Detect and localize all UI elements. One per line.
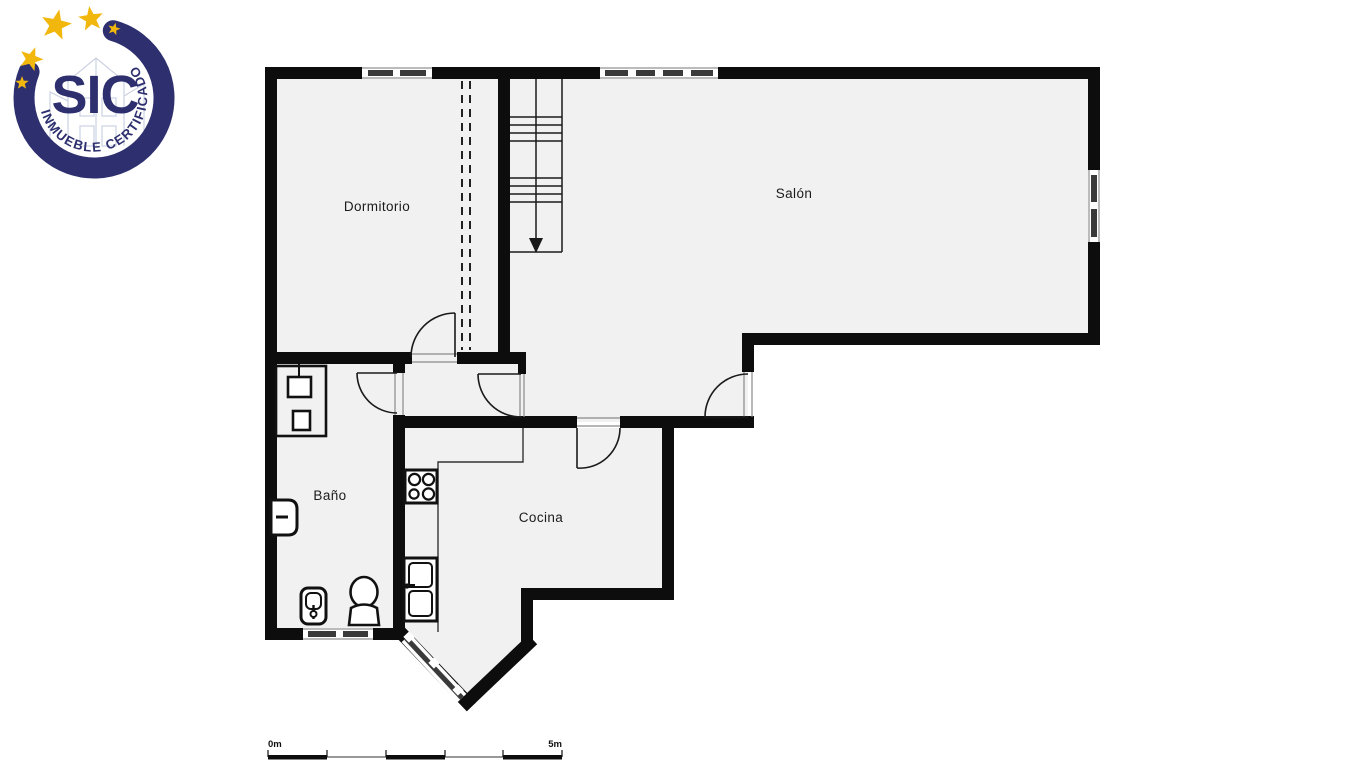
wall-salon-left-upper [742,333,754,372]
window-dormitorio [362,67,432,79]
scale-end-label: 5m [548,739,562,750]
label-cocina: Cocina [519,510,564,525]
wall-corridor-bottom-left [393,416,577,428]
wall-dorm-bottom-right [457,352,526,364]
logo-acronym: SIC [51,65,138,125]
room-cocina-floor [403,428,668,697]
shower-control-icon [271,500,297,535]
wall-salon-bottom [748,333,1100,345]
window-salon-top [600,67,718,79]
hall-floor [397,358,522,422]
vanity-icon [276,364,326,436]
scale-bar: 0m 5m [268,739,562,760]
label-salon: Salón [776,186,813,201]
room-salon-floor [504,73,1094,422]
floorplan-page: Dormitorio Salón Baño Cocina 0m 5m [0,0,1366,768]
wall-hall-right-bottom [518,417,526,428]
toilet-icon [349,577,379,625]
wall-bath-right-top [393,352,405,373]
window-salon-right [1088,170,1100,242]
stove-icon [405,470,437,503]
kitchen-sink-icon [403,558,437,621]
window-bano-bottom [303,628,373,640]
bidet-icon [301,588,326,624]
label-dormitorio: Dormitorio [344,199,410,214]
wall-hall-right-top [518,364,526,374]
wall-kitchen-right [662,416,674,600]
wall-kitchen-bottom [521,588,674,600]
wall-dorm-bottom-left [265,352,412,364]
wall-dorm-right [498,67,510,364]
label-bano: Baño [313,488,346,503]
sic-certification-logo: SIC INMUEBLE CERTIFICADO [6,6,186,186]
floorplan-drawing: Dormitorio Salón Baño Cocina 0m 5m [0,0,1366,768]
scale-start-label: 0m [268,739,282,750]
